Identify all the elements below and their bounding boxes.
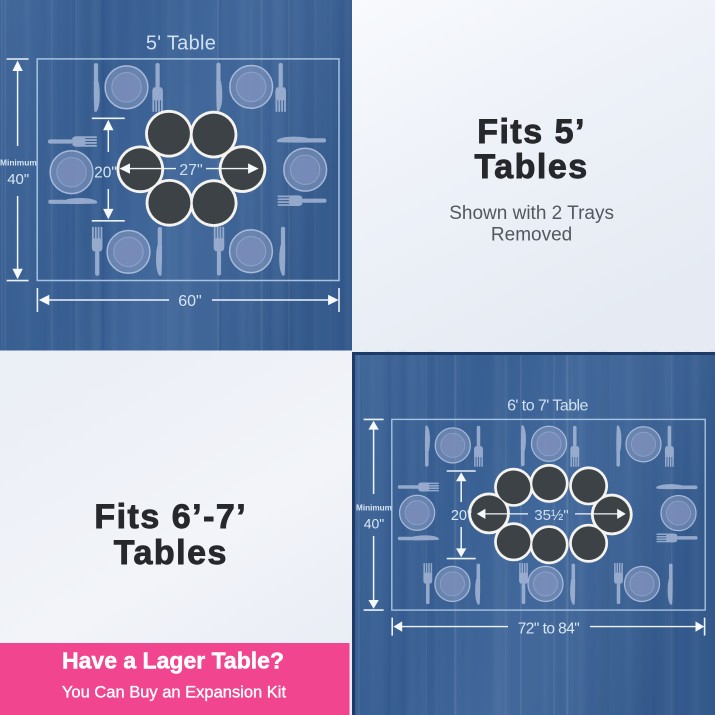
svg-text:60": 60" bbox=[178, 293, 201, 310]
svg-text:27": 27" bbox=[179, 162, 202, 179]
svg-text:6' to 7' Table: 6' to 7' Table bbox=[507, 398, 588, 415]
svg-text:Minimum: Minimum bbox=[0, 158, 37, 168]
svg-text:35½": 35½" bbox=[534, 507, 569, 524]
svg-text:You Can Buy an Expansion Kit: You Can Buy an Expansion Kit bbox=[62, 684, 287, 702]
svg-text:40": 40" bbox=[364, 516, 385, 532]
svg-text:72" to 84": 72" to 84" bbox=[518, 621, 580, 638]
svg-text:Fits 6’-7’: Fits 6’-7’ bbox=[94, 498, 247, 536]
svg-text:Tables: Tables bbox=[475, 148, 589, 186]
svg-text:5' Table: 5' Table bbox=[146, 33, 216, 55]
svg-text:Minimum: Minimum bbox=[356, 504, 392, 513]
svg-text:20": 20" bbox=[94, 165, 117, 182]
svg-text:Removed: Removed bbox=[491, 225, 572, 246]
svg-text:Fits 5’: Fits 5’ bbox=[477, 113, 586, 151]
svg-text:20": 20" bbox=[451, 508, 472, 524]
svg-text:Have a Lager Table?: Have a Lager Table? bbox=[62, 648, 284, 674]
svg-text:Shown with 2 Trays: Shown with 2 Trays bbox=[449, 203, 614, 224]
svg-text:40": 40" bbox=[7, 171, 29, 188]
svg-text:Tables: Tables bbox=[114, 534, 228, 572]
